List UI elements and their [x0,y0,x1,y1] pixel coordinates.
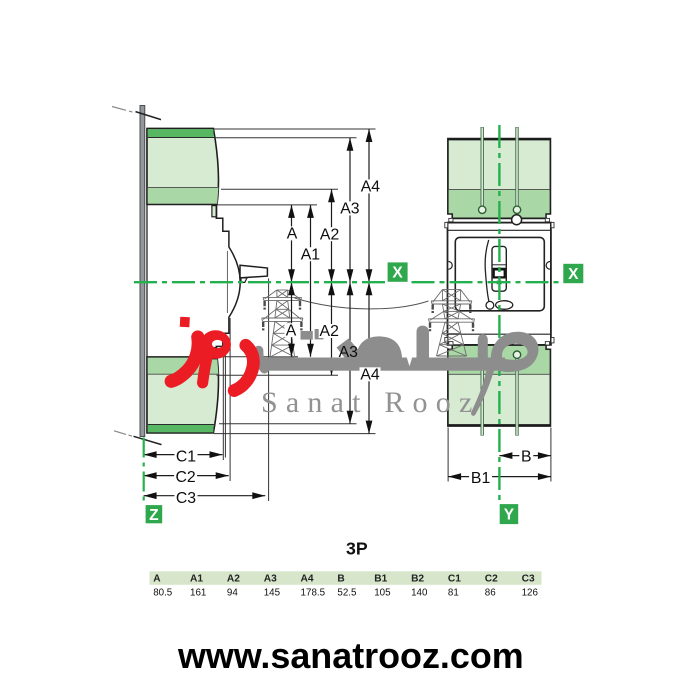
svg-text:140: 140 [411,588,428,599]
svg-text:A4: A4 [360,367,380,384]
svg-text:C2: C2 [485,573,498,584]
svg-text:81: 81 [448,588,459,599]
svg-text:B1: B1 [471,470,491,487]
svg-text:A2: A2 [227,573,240,584]
svg-text:B2: B2 [411,573,424,584]
svg-text:C1: C1 [448,573,461,584]
svg-text:X: X [392,265,403,282]
svg-text:126: 126 [522,588,539,599]
svg-text:80.5: 80.5 [153,588,173,599]
svg-text:X: X [568,266,579,283]
svg-text:94: 94 [227,588,238,599]
svg-text:A4: A4 [301,573,314,584]
svg-text:Y: Y [504,507,515,524]
svg-text:A1: A1 [190,573,203,584]
svg-text:A1: A1 [301,246,321,263]
svg-text:C1: C1 [176,448,196,465]
svg-text:B: B [337,573,344,584]
svg-text:A: A [286,322,297,339]
svg-text:145: 145 [264,588,281,599]
svg-text:A3: A3 [264,573,277,584]
svg-text:A: A [153,573,161,584]
svg-text:A: A [287,226,298,243]
svg-text:C3: C3 [176,490,196,507]
svg-text:161: 161 [190,588,206,599]
svg-text:A2: A2 [320,226,339,243]
svg-text:C3: C3 [522,573,535,584]
svg-text:B: B [521,449,532,466]
svg-text:105: 105 [374,588,391,599]
svg-text:178.5: 178.5 [301,588,326,599]
svg-text:52.5: 52.5 [337,588,357,599]
svg-text:C2: C2 [175,469,195,486]
svg-text:A4: A4 [361,179,381,196]
svg-text:Sanat Rooz: Sanat Rooz [261,386,480,419]
svg-text:86: 86 [485,588,496,599]
svg-text:3P: 3P [346,538,368,558]
svg-text:B1: B1 [374,573,387,584]
svg-text:Z: Z [149,507,159,524]
svg-text:www.sanatrooz.com: www.sanatrooz.com [177,636,524,676]
svg-text:A2: A2 [320,323,339,340]
svg-text:A3: A3 [340,201,360,218]
svg-text:A3: A3 [339,344,359,361]
